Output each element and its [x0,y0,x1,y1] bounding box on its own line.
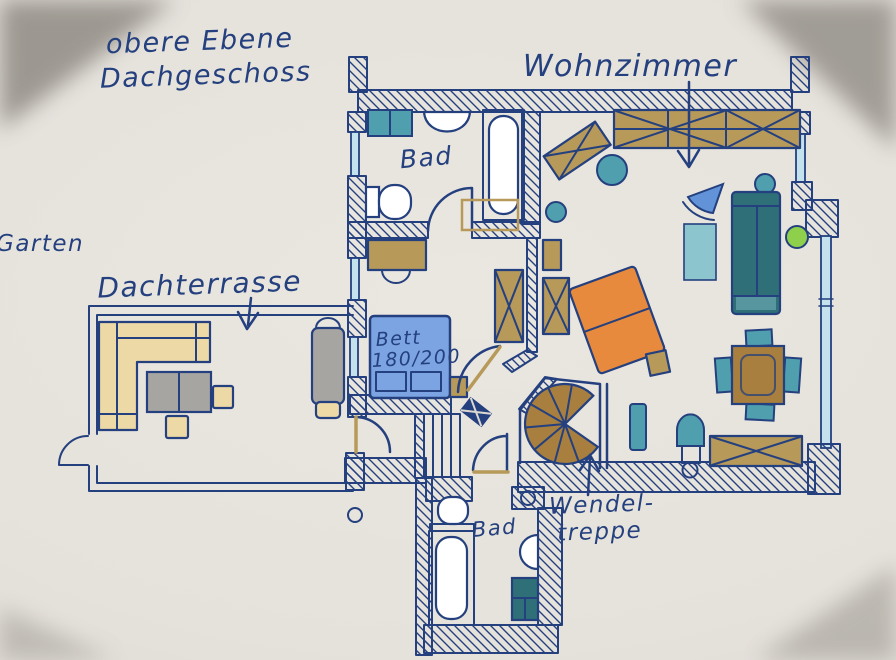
wall-segment [348,176,366,258]
desk-chair [382,270,410,283]
wall-segment [348,222,428,238]
rug [684,224,716,280]
window [350,337,358,377]
label-bathroom-upper: Bad [399,141,454,174]
bathroom-upper [366,110,524,231]
label-garden: Garten [0,231,84,257]
label-roof-terrace: Dachterrasse [97,264,303,304]
wall-post [348,508,362,522]
lounger-headrest [316,318,340,328]
shelf-small [543,240,561,270]
shower [512,578,538,620]
wall-segment [348,112,366,132]
sideboard-top [614,110,800,148]
toilet [438,497,468,524]
desk [368,240,426,270]
label-title-line2: Dachgeschoss [99,56,312,94]
toilet [366,185,411,219]
stairs-down [424,414,460,477]
floor-plan-sketch: Bett 180/200 [0,0,896,660]
roof-terrace-arrow [238,298,258,329]
wall-segment [358,90,792,112]
label-title-line1: obere Ebene [105,23,294,61]
plant [786,226,808,248]
sideboard-bottom [710,436,802,466]
bathtub [429,531,474,625]
dining-chair [783,357,801,392]
stool-small [646,350,670,376]
terrace-lounger [312,318,344,418]
terrace-corridor-door [356,417,390,452]
wall-segment [503,350,537,372]
radiator [630,404,646,450]
living-room [543,110,808,478]
dining-chair [715,357,733,392]
dining-chair [746,329,773,346]
corridor-living-door [473,434,508,472]
bedroom: Bett 180/200 [368,240,523,398]
label-spiral-staircase-line2: treppe [557,518,643,547]
roof-terrace [59,306,390,491]
wall-segment [424,625,558,653]
stool [546,202,566,222]
window-large [821,236,831,448]
wall-segment [527,238,537,352]
terrace-stool [166,416,188,438]
wall-segment [791,57,809,92]
sink [424,112,470,132]
desk-chair [597,155,627,185]
bath-window-sill [368,110,412,136]
terrace-garden-door [59,436,88,465]
bed: Bett 180/200 [370,316,462,398]
wall-segment [806,200,838,237]
fan-armchair [683,184,723,220]
shoe-cabinet [461,398,491,427]
lounger-footrest [316,402,340,418]
sofa [732,192,780,314]
wall-segment [345,458,426,483]
spiral-staircase [520,378,607,468]
wall-segment [415,414,424,478]
label-bed-size: 180/200 [371,345,461,372]
bathroom-door [428,188,472,231]
dining-table [715,329,801,420]
label-bathroom-lower: Bad [471,514,518,542]
dining-chair [746,403,775,420]
label-spiral-staircase-line1: Wendel- [549,490,655,520]
floor-plan-svg: Bett 180/200 [0,0,896,660]
wall-segment [349,57,367,92]
window [351,258,359,300]
window [351,132,359,176]
terrace-stool [213,386,233,408]
label-living-room: Wohnzimmer [523,49,738,84]
sink [520,535,538,569]
